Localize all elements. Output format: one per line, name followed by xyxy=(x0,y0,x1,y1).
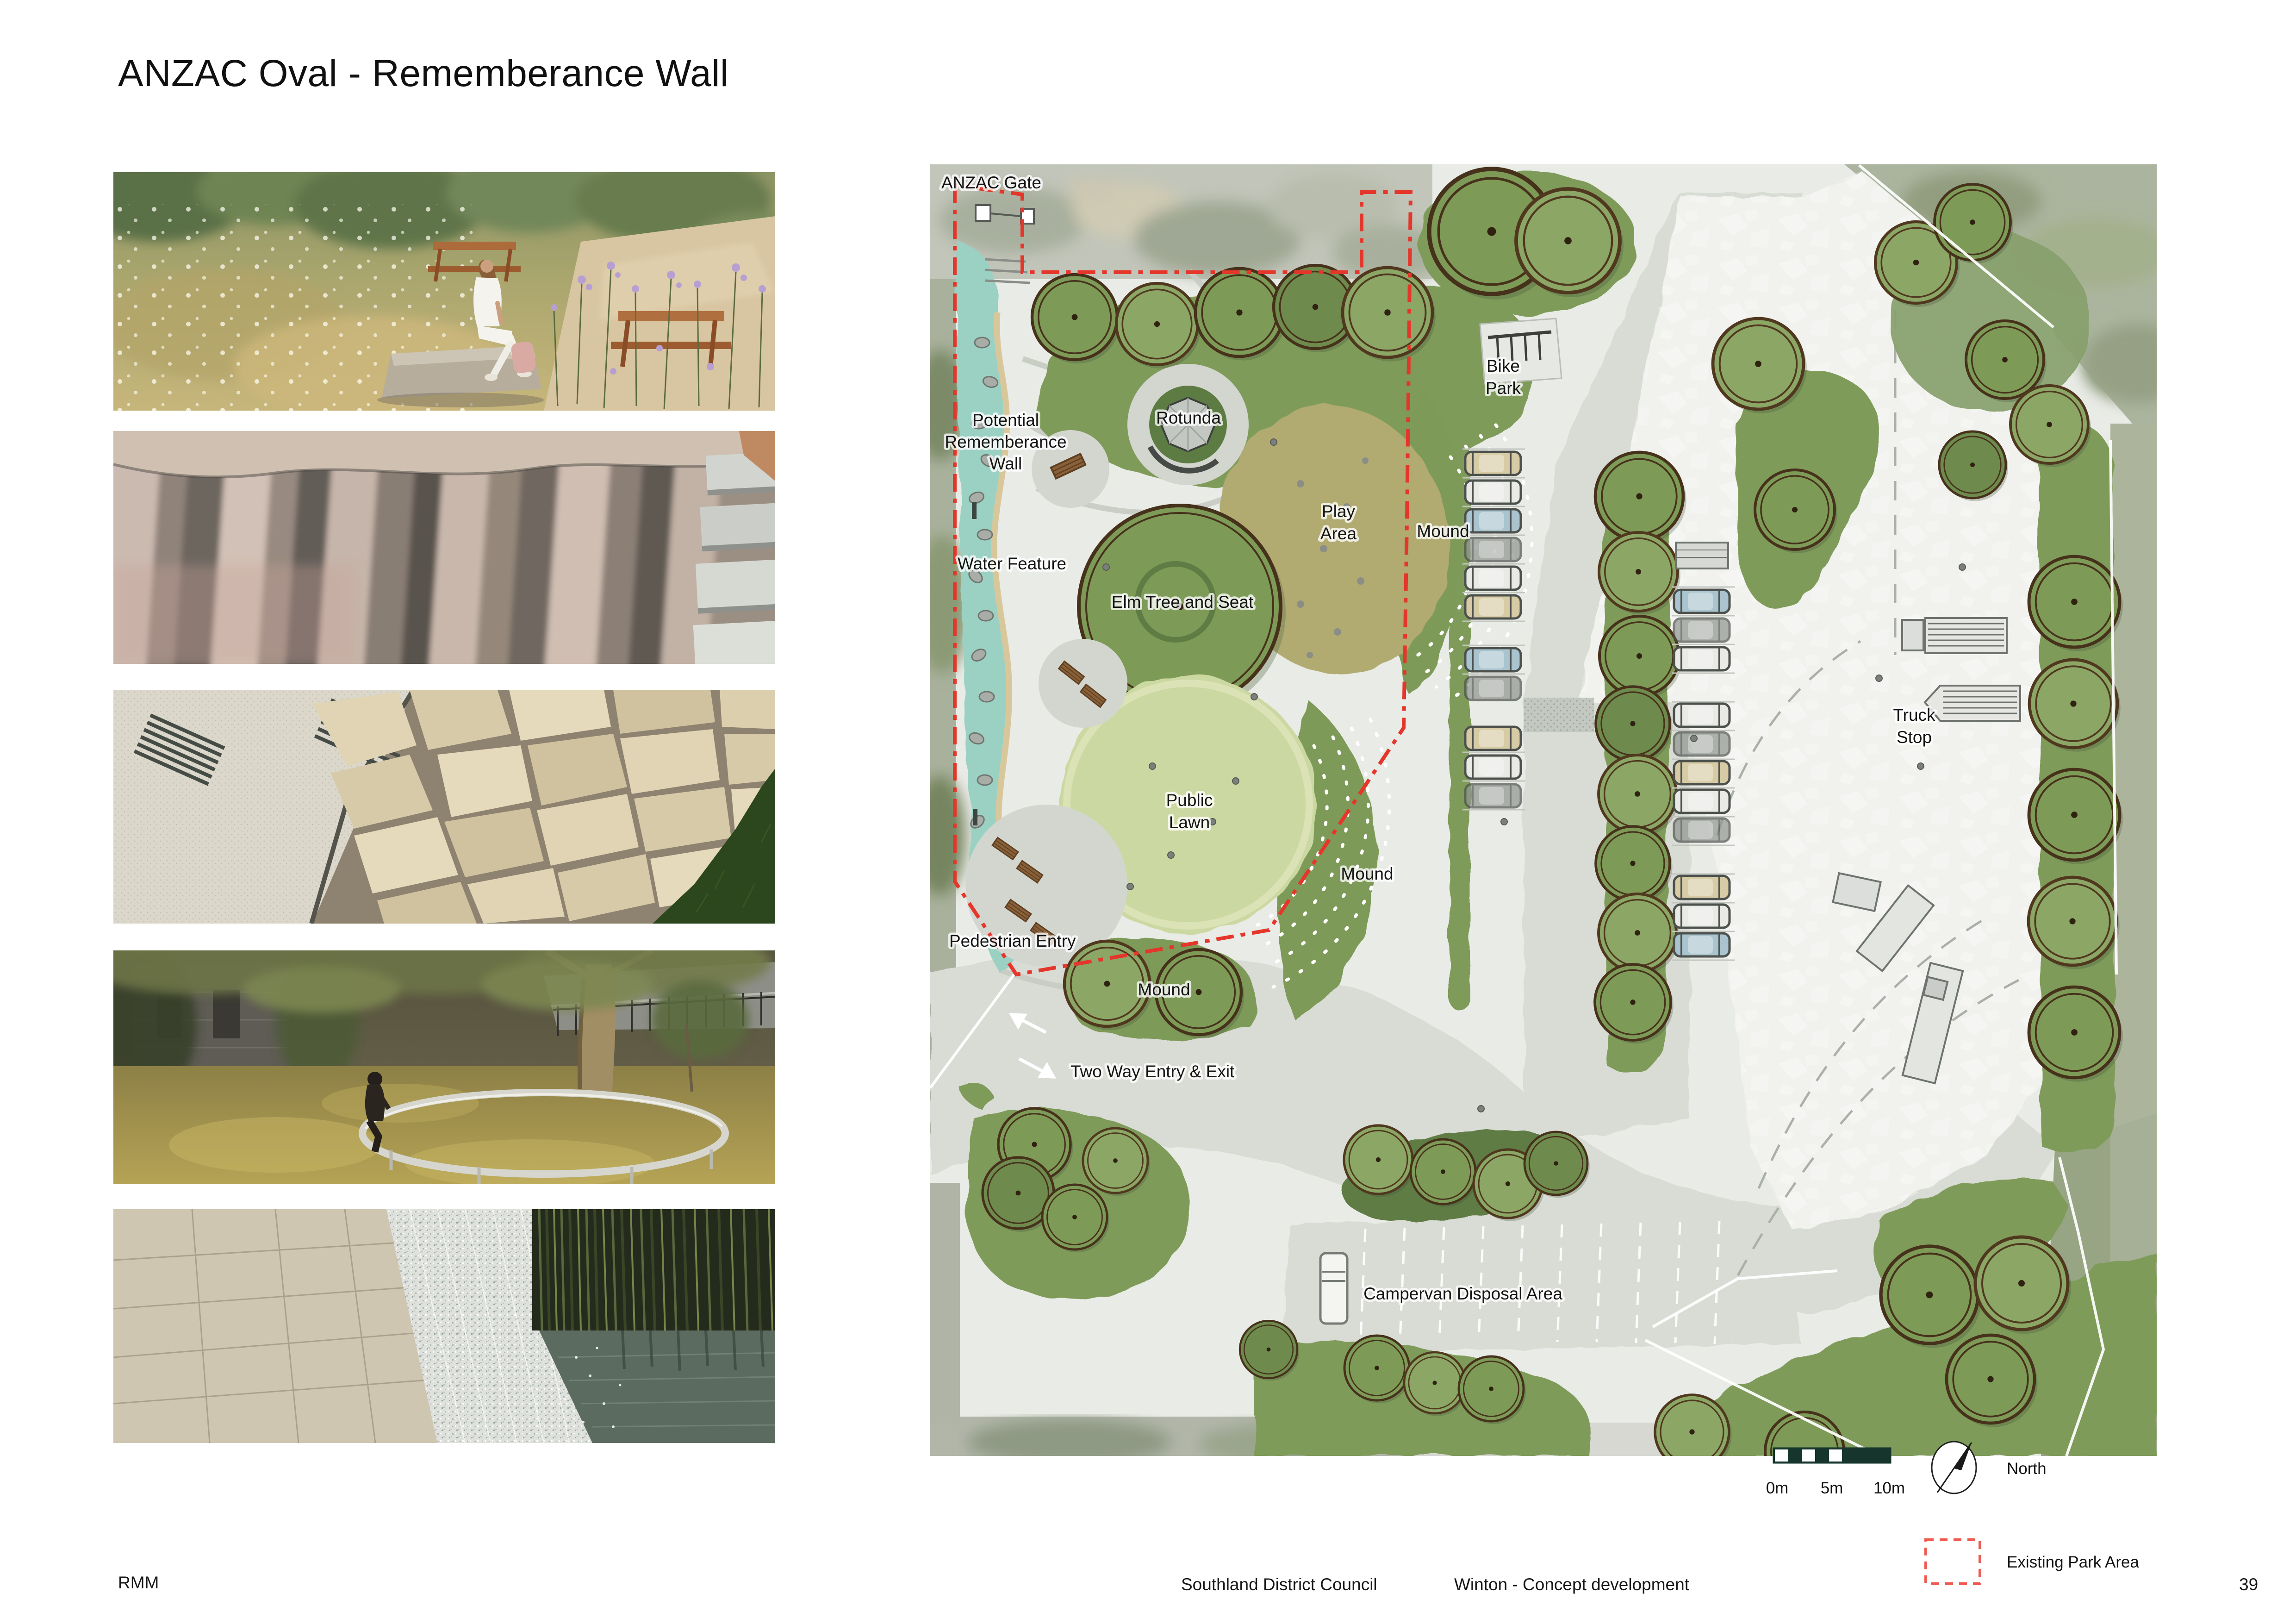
label-truck-stop: Truck xyxy=(1893,706,1935,725)
scale-label-10m: 10m xyxy=(1873,1479,1905,1497)
photo-1-art xyxy=(113,172,775,411)
label-bike-park-2: Park xyxy=(1486,379,1521,398)
car-icon xyxy=(1465,452,1521,475)
photo-carved-stone-wall xyxy=(113,431,775,664)
car-icon xyxy=(1465,677,1521,700)
site-plan: ANZAC Gate Bike Park Potential Remembera… xyxy=(930,164,2157,1456)
car-icon xyxy=(1674,590,1730,613)
footer-client: Southland District Council xyxy=(1181,1575,1377,1594)
photo-5-art xyxy=(113,1209,775,1443)
label-play-area-2: Area xyxy=(1320,524,1357,543)
car-icon xyxy=(1465,567,1521,590)
car-icon xyxy=(1465,756,1521,779)
label-mound-ne: Mound xyxy=(1417,522,1469,541)
legend-drawing: 0m 5m 10m North Existing Park Area xyxy=(1749,1426,2157,1602)
label-public-lawn-2: Lawn xyxy=(1169,813,1210,832)
car-icon xyxy=(1465,538,1521,561)
photo-3-art xyxy=(113,690,775,924)
car-icon xyxy=(1465,648,1521,671)
label-water-feature: Water Feature xyxy=(958,554,1066,573)
photo-wildflower-meadow-seating xyxy=(113,172,775,411)
footer-logo: RMM xyxy=(118,1573,159,1593)
car-icon xyxy=(1674,818,1730,842)
car-icon xyxy=(1674,732,1730,756)
label-remembrance-wall-2: Rememberance xyxy=(945,432,1066,451)
scale-label-5m: 5m xyxy=(1821,1479,1843,1497)
footer-page-number: 39 xyxy=(2239,1575,2258,1594)
label-mound-mid: Mound xyxy=(1341,864,1393,883)
car-icon xyxy=(1465,509,1521,532)
car-icon xyxy=(1674,876,1730,899)
existing-park-label: Existing Park Area xyxy=(2007,1553,2139,1571)
label-two-way-entry: Two Way Entry & Exit xyxy=(1070,1062,1235,1081)
car-icon xyxy=(1674,933,1730,956)
parking-shelter xyxy=(1676,543,1728,568)
photo-2-art xyxy=(113,431,775,664)
label-play-area: Play xyxy=(1322,502,1355,521)
north-label: North xyxy=(2007,1460,2047,1478)
north-compass-icon xyxy=(1932,1442,1976,1493)
label-elm-tree: Elm Tree and Seat xyxy=(1112,593,1254,612)
car-icon xyxy=(1465,595,1521,618)
page-title: ANZAC Oval - Rememberance Wall xyxy=(118,52,729,95)
label-truck-stop-2: Stop xyxy=(1897,728,1932,747)
label-bike-park: Bike xyxy=(1487,356,1520,375)
label-public-lawn: Public xyxy=(1166,791,1213,810)
label-mound-south: Mound xyxy=(1138,980,1190,999)
label-campervan-area: Campervan Disposal Area xyxy=(1363,1284,1562,1303)
photo-crazy-paving xyxy=(113,690,775,924)
campervan-icon xyxy=(1320,1253,1347,1324)
existing-park-swatch xyxy=(1926,1540,1980,1584)
label-remembrance-wall: Potential xyxy=(972,411,1039,430)
car-icon xyxy=(1674,761,1730,784)
label-anzac-gate: ANZAC Gate xyxy=(941,173,1041,192)
car-icon xyxy=(1674,618,1730,642)
car-icon xyxy=(1674,704,1730,727)
car-icon xyxy=(1465,481,1521,504)
photo-circular-tree-seat xyxy=(113,950,775,1184)
car-icon xyxy=(1674,790,1730,813)
scale-bar xyxy=(1773,1448,1891,1463)
car-icon xyxy=(1674,647,1730,670)
label-pedestrian-entry: Pedestrian Entry xyxy=(949,931,1076,950)
elm-seat-circle xyxy=(1039,639,1127,728)
label-remembrance-wall-3: Wall xyxy=(989,454,1022,473)
car-icon xyxy=(1465,784,1521,807)
car-icon xyxy=(1674,905,1730,928)
photo-4-art xyxy=(113,950,775,1184)
label-rotunda: Rotunda xyxy=(1156,408,1221,427)
site-plan-drawing: ANZAC Gate Bike Park Potential Remembera… xyxy=(930,164,2157,1456)
footer-project: Winton - Concept development xyxy=(1454,1575,1689,1594)
scale-label-0m: 0m xyxy=(1766,1479,1789,1497)
legend: 0m 5m 10m North Existing Park Area xyxy=(1749,1426,2157,1602)
car-icon xyxy=(1465,727,1521,750)
photo-water-wall xyxy=(113,1209,775,1443)
page: { "page": { "title": "ANZAC Oval - Remem… xyxy=(0,0,2296,1624)
stone-wall xyxy=(113,1209,437,1443)
